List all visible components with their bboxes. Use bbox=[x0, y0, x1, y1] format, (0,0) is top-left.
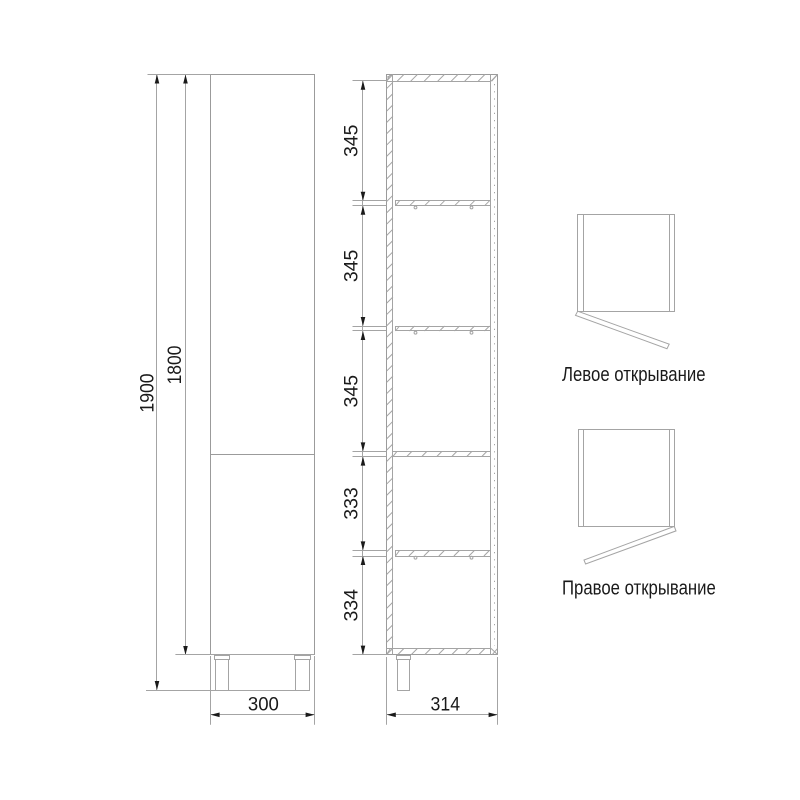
svg-text:314: 314 bbox=[431, 695, 461, 716]
svg-text:1900: 1900 bbox=[137, 373, 158, 412]
svg-text:1800: 1800 bbox=[165, 346, 186, 385]
svg-text:345: 345 bbox=[342, 250, 363, 283]
svg-text:333: 333 bbox=[342, 487, 363, 520]
svg-text:Правое открывание: Правое открывание bbox=[562, 578, 716, 600]
svg-text:300: 300 bbox=[248, 695, 279, 716]
svg-text:Левое открывание: Левое открывание bbox=[562, 364, 706, 386]
svg-text:345: 345 bbox=[342, 125, 363, 158]
svg-text:345: 345 bbox=[342, 375, 363, 408]
svg-text:334: 334 bbox=[342, 589, 363, 622]
